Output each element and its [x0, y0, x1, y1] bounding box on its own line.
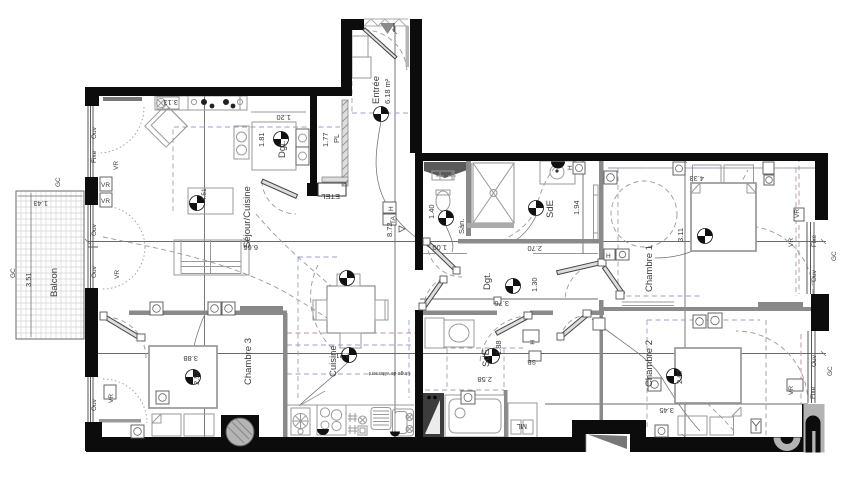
svg-text:1.43: 1.43 — [33, 199, 48, 208]
svg-text:ML: ML — [517, 422, 527, 431]
svg-text:SB: SB — [527, 358, 536, 365]
svg-text:Ouv: Ouv — [811, 354, 818, 367]
svg-text:4.33: 4.33 — [689, 174, 704, 183]
svg-text:2.70: 2.70 — [527, 244, 542, 253]
svg-text:Fixe: Fixe — [811, 234, 818, 247]
svg-text:Dgt.: Dgt. — [482, 273, 493, 290]
svg-text:TA: TA — [390, 216, 397, 224]
svg-text:VR: VR — [788, 238, 795, 247]
svg-text:Ouv: Ouv — [811, 269, 818, 282]
svg-text:3.45: 3.45 — [659, 406, 674, 415]
svg-text:SdE: SdE — [545, 200, 556, 218]
svg-text:Ouv: Ouv — [91, 265, 98, 278]
svg-text:1.94: 1.94 — [572, 200, 581, 215]
svg-text:4.51: 4.51 — [201, 188, 208, 201]
svg-text:VR: VR — [101, 198, 110, 205]
svg-text:2.21: 2.21 — [335, 351, 350, 360]
svg-text:3.51: 3.51 — [24, 272, 33, 287]
svg-text:Fixe: Fixe — [91, 150, 98, 163]
svg-text:1.00: 1.00 — [432, 243, 447, 252]
svg-text:1.77: 1.77 — [321, 132, 330, 147]
svg-text:Séjour/Cuisine: Séjour/Cuisine — [242, 186, 253, 248]
svg-text:GC: GC — [827, 366, 834, 376]
svg-text:Fixe: Fixe — [810, 386, 817, 399]
svg-text:6.18 m²: 6.18 m² — [383, 78, 392, 104]
svg-text:1.40: 1.40 — [427, 204, 436, 219]
svg-text:2.58: 2.58 — [192, 370, 201, 385]
svg-text:2.67: 2.67 — [675, 369, 684, 384]
svg-text:1.81: 1.81 — [257, 132, 266, 147]
svg-text:GC: GC — [831, 251, 838, 261]
svg-text:H: H — [388, 206, 395, 211]
svg-text:Ouv: Ouv — [91, 223, 98, 236]
svg-text:1.88: 1.88 — [494, 340, 503, 355]
svg-text:1.20: 1.20 — [276, 113, 291, 122]
svg-text:VR: VR — [113, 161, 120, 170]
svg-text:Entrée: Entrée — [371, 76, 382, 104]
svg-text:Sàn.: Sàn. — [457, 219, 466, 234]
svg-text:VR: VR — [101, 182, 110, 189]
svg-text:SdE: SdE — [481, 349, 492, 367]
svg-text:3.13: 3.13 — [163, 98, 178, 107]
svg-text:Chambre 2: Chambre 2 — [644, 340, 655, 387]
svg-text:Cuisine: Cuisine — [328, 345, 339, 377]
svg-text:3.76: 3.76 — [494, 299, 509, 308]
svg-text:GC: GC — [10, 268, 17, 278]
svg-text:VR: VR — [794, 209, 801, 218]
svg-text:VR: VR — [114, 270, 121, 279]
svg-text:Dgt.: Dgt. — [277, 141, 288, 158]
svg-text:VR: VR — [788, 386, 795, 395]
svg-text:1.30: 1.30 — [530, 277, 539, 292]
svg-text:Ouv: Ouv — [91, 398, 98, 411]
svg-text:3.11: 3.11 — [676, 228, 685, 242]
svg-text:Balcon: Balcon — [49, 268, 60, 297]
svg-text:H: H — [567, 165, 574, 170]
svg-text:Ouv: Ouv — [91, 126, 98, 139]
svg-text:H: H — [606, 253, 611, 260]
svg-text:3.88: 3.88 — [183, 354, 198, 363]
svg-text:2.58: 2.58 — [477, 375, 492, 384]
svg-text:PL: PL — [332, 134, 341, 143]
svg-text:H: H — [528, 340, 535, 345]
svg-text:GC: GC — [55, 177, 62, 187]
svg-text:VR: VR — [108, 394, 115, 403]
svg-text:Chambre 3: Chambre 3 — [243, 338, 254, 385]
svg-text:Chambre 1: Chambre 1 — [644, 245, 655, 292]
svg-text:Linge de vêtement: Linge de vêtement — [368, 370, 410, 376]
svg-text:6.66: 6.66 — [243, 243, 258, 252]
